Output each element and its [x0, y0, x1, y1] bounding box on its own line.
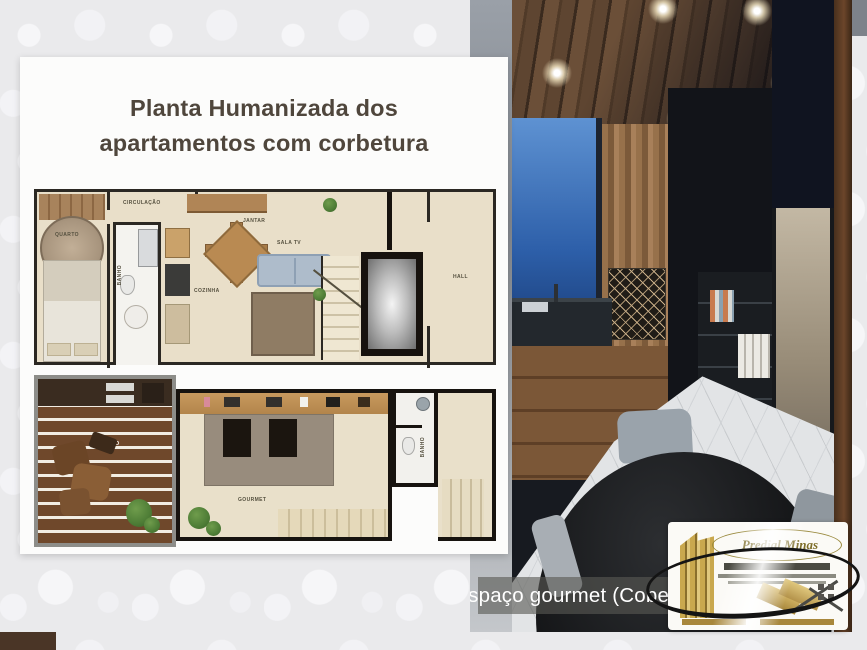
- room-label-hall: HALL: [453, 274, 468, 280]
- card-title-line2: apartamentos com corbetura: [20, 126, 508, 161]
- room-label-jantar: JANTAR: [243, 218, 265, 224]
- room-label-banho: BANHO: [117, 265, 123, 285]
- counter-item: [300, 397, 308, 407]
- plant-plan: [323, 198, 337, 212]
- counter-item: [204, 397, 210, 407]
- sideboard: [187, 194, 267, 213]
- planter-item: [142, 383, 164, 403]
- card-title: Planta Humanizada dos apartamentos com c…: [20, 91, 508, 162]
- room-label-banho-lower: BANHO: [420, 437, 426, 457]
- flyer-page: Espaço gourmet (Coberturas) Planta Human…: [0, 0, 867, 650]
- bed: [43, 260, 101, 362]
- pergola-slats: [278, 509, 388, 537]
- upper-bathroom: BANHO: [113, 222, 161, 365]
- sofa-plan: [257, 254, 331, 287]
- wall: [427, 192, 430, 222]
- card-title-line1: Planta Humanizada dos: [20, 91, 508, 126]
- gourmet-rug: [204, 414, 334, 486]
- sink: [522, 302, 548, 312]
- room-label-quarto: QUARTO: [55, 232, 79, 238]
- planter-item: [106, 383, 134, 391]
- bed-blanket: [44, 261, 100, 301]
- wall: [107, 224, 110, 368]
- wall: [107, 192, 110, 210]
- grill-stool: [269, 419, 297, 457]
- counter-item: [358, 397, 370, 407]
- books: [738, 334, 770, 378]
- stairs-plan: [321, 256, 359, 360]
- elevator-plan: [361, 252, 423, 356]
- gourmet-plant: [206, 521, 221, 536]
- fridge: [165, 228, 190, 258]
- shower: [138, 229, 158, 267]
- shower: [416, 397, 430, 411]
- terrace-furniture: [59, 488, 92, 517]
- counter-item: [266, 397, 282, 407]
- living-rug-plan: [251, 292, 315, 356]
- lower-floor-plan: TERRAÇO: [34, 375, 496, 547]
- kitchen-counter-plan: [165, 304, 190, 344]
- bed-pillow: [74, 343, 98, 356]
- wine-rack: [608, 268, 666, 340]
- toilet: [402, 437, 415, 455]
- bottles: [710, 290, 734, 322]
- faucet: [554, 284, 558, 302]
- terrace-planter: [38, 379, 172, 406]
- lower-hall-area: [438, 389, 496, 541]
- room-label-circulacao: CIRCULAÇÃO: [123, 200, 161, 206]
- room-label-gourmet: GOURMET: [238, 497, 266, 503]
- lower-stairs: [442, 479, 484, 537]
- wall: [396, 425, 422, 428]
- terrace-plant: [144, 517, 160, 533]
- room-label-cozinha: COZINHA: [194, 288, 220, 294]
- bed-pillow: [47, 343, 71, 356]
- counter-item: [224, 397, 240, 407]
- gourmet-counter: [180, 393, 388, 414]
- stove: [165, 264, 190, 296]
- wall: [427, 326, 430, 368]
- bathroom-sink: [124, 305, 148, 329]
- grill-stool: [223, 419, 251, 457]
- wall: [387, 192, 392, 250]
- plant-plan: [313, 288, 326, 301]
- gourmet-room-plan: GOURMET: [176, 389, 392, 541]
- planter-item: [106, 395, 134, 403]
- bottom-left-brown-block: [0, 632, 56, 650]
- top-right-gray-block: [851, 0, 867, 36]
- counter-item: [326, 397, 340, 407]
- ceiling-spotlight: [542, 58, 572, 88]
- room-label-sala-tv: SALA TV: [277, 240, 301, 246]
- lower-bathroom: BANHO: [392, 389, 438, 487]
- upper-floor-plan: QUARTO CIRCULAÇÃO BANHO COZINHA JANTAR: [34, 189, 496, 365]
- terrace-deck: TERRAÇO: [34, 375, 176, 547]
- terrace-furniture: [88, 431, 118, 455]
- floorplan-card: Planta Humanizada dos apartamentos com c…: [20, 57, 508, 554]
